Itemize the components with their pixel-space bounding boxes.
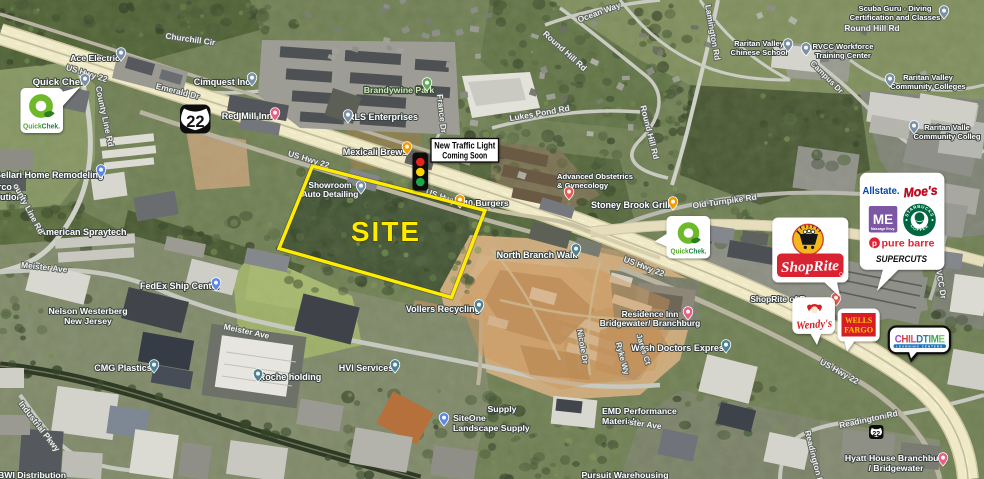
svg-text:Mexicali Brews: Mexicali Brews xyxy=(343,147,408,157)
svg-text:Terco: Terco xyxy=(0,182,12,192)
svg-text:New Traffic Light: New Traffic Light xyxy=(434,141,495,151)
svg-text:Ace Electric: Ace Electric xyxy=(70,53,120,63)
svg-text:Raritan Valley: Raritan Valley xyxy=(903,73,954,82)
svg-text:Scuba Guru - Diving: Scuba Guru - Diving xyxy=(859,4,932,13)
svg-text:EMD Performance: EMD Performance xyxy=(602,406,677,416)
svg-text:Massage Envy.: Massage Envy. xyxy=(871,227,895,231)
svg-text:RLS Enterprises: RLS Enterprises xyxy=(348,112,418,122)
svg-text:Round Hill Rd: Round Hill Rd xyxy=(844,23,899,33)
svg-text:Community Colleges: Community Colleges xyxy=(890,82,966,91)
svg-text:ME: ME xyxy=(873,212,893,227)
svg-text:Chinese School: Chinese School xyxy=(731,48,788,57)
svg-text:SiteOne: SiteOne xyxy=(453,413,486,423)
svg-text:North Branch Walk: North Branch Walk xyxy=(497,250,579,260)
svg-text:22: 22 xyxy=(186,113,204,131)
svg-text:Allstate.: Allstate. xyxy=(863,186,900,197)
svg-text:RVCC Workforce: RVCC Workforce xyxy=(813,42,874,51)
svg-text:New Jersey: New Jersey xyxy=(64,316,112,326)
svg-text:Vollers Recycling: Vollers Recycling xyxy=(406,304,480,314)
svg-text:Advanced Obstetrics: Advanced Obstetrics xyxy=(557,172,633,181)
svg-text:QuickChek.: QuickChek. xyxy=(671,247,707,256)
svg-text:Cimquest Inc: Cimquest Inc xyxy=(194,77,251,87)
svg-text:LEARNING CENTERS: LEARNING CENTERS xyxy=(896,344,943,348)
svg-text:Red Mill Inn: Red Mill Inn xyxy=(222,111,273,121)
svg-text:Hyatt House Branchburg: Hyatt House Branchburg xyxy=(845,453,947,463)
svg-text:Coming Soon: Coming Soon xyxy=(442,151,487,161)
svg-text:Raritan Valley: Raritan Valley xyxy=(734,39,785,48)
svg-text:Landscape Supply: Landscape Supply xyxy=(453,423,530,433)
svg-text:SUPERCUTS: SUPERCUTS xyxy=(876,254,928,264)
svg-text:Certification and Classes: Certification and Classes xyxy=(850,13,941,22)
svg-text:Wendy's: Wendy's xyxy=(796,318,833,333)
svg-text:Moe's: Moe's xyxy=(903,183,938,201)
svg-text:American Spraytech: American Spraytech xyxy=(39,227,126,237)
svg-text:WELLS: WELLS xyxy=(845,316,872,325)
svg-text:Quick Chek: Quick Chek xyxy=(33,77,86,88)
svg-text:QuickChek.: QuickChek. xyxy=(23,122,60,131)
svg-text:Auto Detailing: Auto Detailing xyxy=(302,189,359,199)
svg-text:SITE: SITE xyxy=(351,216,421,247)
svg-text:BWI Distribution: BWI Distribution xyxy=(0,470,66,479)
svg-text:Stoney Brook Grille: Stoney Brook Grille xyxy=(591,200,675,210)
svg-text:Bellari Home Remodeling: Bellari Home Remodeling xyxy=(0,170,104,180)
svg-text:Nelson Westerberg: Nelson Westerberg xyxy=(48,306,127,316)
svg-text:FARGO: FARGO xyxy=(844,326,873,335)
svg-text:22: 22 xyxy=(872,431,880,438)
svg-text:FedEx Ship Center: FedEx Ship Center xyxy=(140,281,221,291)
svg-text:HVI Services: HVI Services xyxy=(339,363,394,373)
svg-text:Pursuit Warehousing: Pursuit Warehousing xyxy=(581,470,668,479)
svg-text:Roche holding: Roche holding xyxy=(259,372,322,382)
svg-text:Raritan Valle: Raritan Valle xyxy=(924,123,970,132)
svg-text:/ Bridgewater: / Bridgewater xyxy=(868,463,924,473)
svg-text:Supply: Supply xyxy=(488,404,517,414)
svg-text:ShopRite: ShopRite xyxy=(781,258,840,276)
svg-text:p: p xyxy=(872,239,877,248)
svg-text:Bridgewater/ Branchburg: Bridgewater/ Branchburg xyxy=(600,318,701,328)
svg-text:Community Colleg: Community Colleg xyxy=(913,132,980,141)
svg-text:CMG Plastics: CMG Plastics xyxy=(94,363,152,373)
svg-text:pure barre: pure barre xyxy=(882,238,935,250)
svg-text:Training Center: Training Center xyxy=(815,51,871,60)
